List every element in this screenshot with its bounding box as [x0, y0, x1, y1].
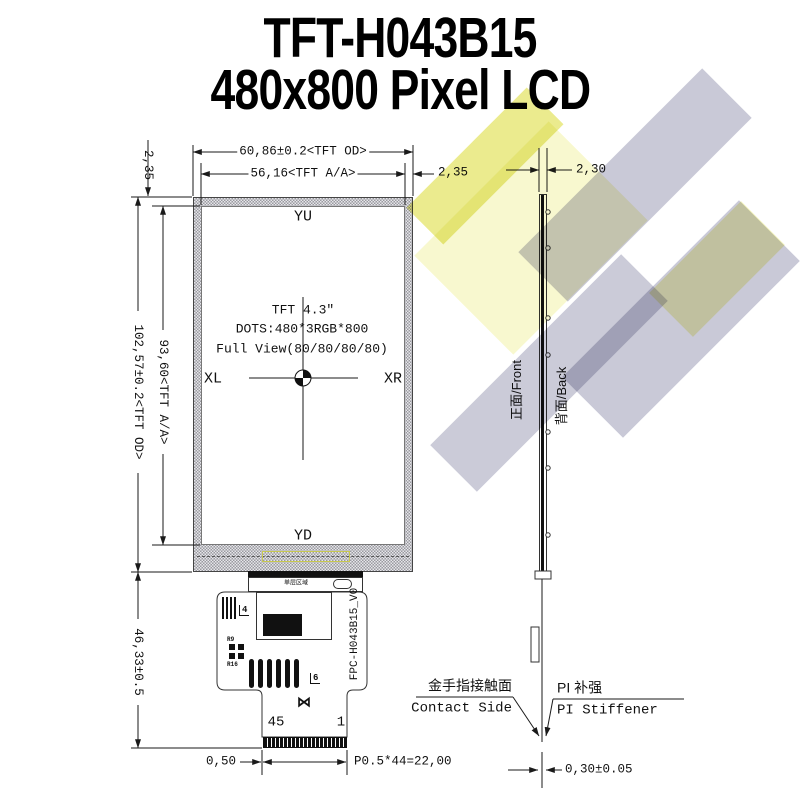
label-yu: YU [294, 210, 312, 225]
dim-pitch: P0.5*44=22,00 [354, 755, 452, 770]
contact-side-cn: 金手指接触面 [428, 679, 512, 694]
watermark-pale-diamond [414, 121, 647, 354]
back-side-label: 背面/Back [554, 351, 569, 441]
label-xl: XL [204, 372, 222, 387]
pi-stiffener-rect [531, 627, 539, 662]
spec-size: TFT 4.3″ [272, 303, 334, 318]
side-bar-foot [535, 571, 551, 579]
dim-width-od: 60,86±0.2<TFT OD> [237, 145, 369, 160]
side-view-core [541, 195, 544, 571]
dim-height-aa: 93,60<TFT A/A> [155, 330, 170, 454]
dim-fpc-length: 46,33±0.5 [130, 619, 145, 705]
watermark-gray-band-left [430, 254, 668, 492]
fpc-mark-6: 6 [310, 673, 320, 684]
label-yd: YD [294, 529, 312, 544]
pin-1-label: 1 [337, 716, 345, 731]
dim-fpc-thickness: 0,30±0.05 [565, 763, 633, 778]
bezel-highlight-rect [262, 551, 350, 562]
spec-dots: DOTS:480*3RGB*800 [236, 322, 369, 337]
title-line2: 480x800 Pixel LCD [210, 62, 590, 119]
fpc-stripe-block [222, 597, 236, 619]
spec-view: Full View(80/80/80/80) [216, 342, 388, 357]
watermark-gray-band-right [562, 200, 800, 438]
dim-height-od: 102,57±0.2<TFT OD> [130, 311, 145, 473]
fpc-resistor-grid [229, 644, 244, 659]
fpc-logo-mark: ⋈ [297, 697, 311, 712]
dim-thickness: 2,30 [576, 163, 606, 178]
watermark-yellow-right [649, 201, 785, 337]
fpc-part-number: FPC-H043B15_V0 [348, 578, 361, 690]
side-view-glass [539, 194, 547, 572]
panel-active-area [201, 206, 405, 545]
label-xr: XR [384, 372, 402, 387]
pin-45-label: 45 [268, 716, 285, 731]
fpc-label-r9: R9 [227, 636, 234, 643]
front-side-label: 正面/Front [509, 345, 524, 435]
fpc-label-r16: R16 [227, 661, 238, 668]
contact-side-en: Contact Side [411, 702, 512, 717]
single-layer-label: 单层区域 [284, 581, 308, 588]
dim-bezel-top: 2,35 [140, 144, 155, 186]
fpc-pad-bars [249, 659, 303, 688]
dim-width-aa: 56,16<TFT A/A> [248, 167, 357, 182]
drawing-sheet: TFT-H043B15 480x800 Pixel LCD 单层区域 YU YD… [0, 0, 800, 800]
pi-stiffener-en: PI Stiffener [557, 704, 658, 719]
page-subtitle: 480x800 Pixel LCD [0, 62, 800, 119]
pi-stiffener-cn: PI 补强 [557, 681, 602, 696]
fpc-connector-block [263, 614, 302, 636]
dim-bezel-right: 2,35 [438, 166, 468, 181]
fpc-mark-4: 4 [239, 605, 249, 616]
dim-margin: 0,50 [206, 755, 236, 770]
fpc-gold-fingers [263, 737, 347, 748]
